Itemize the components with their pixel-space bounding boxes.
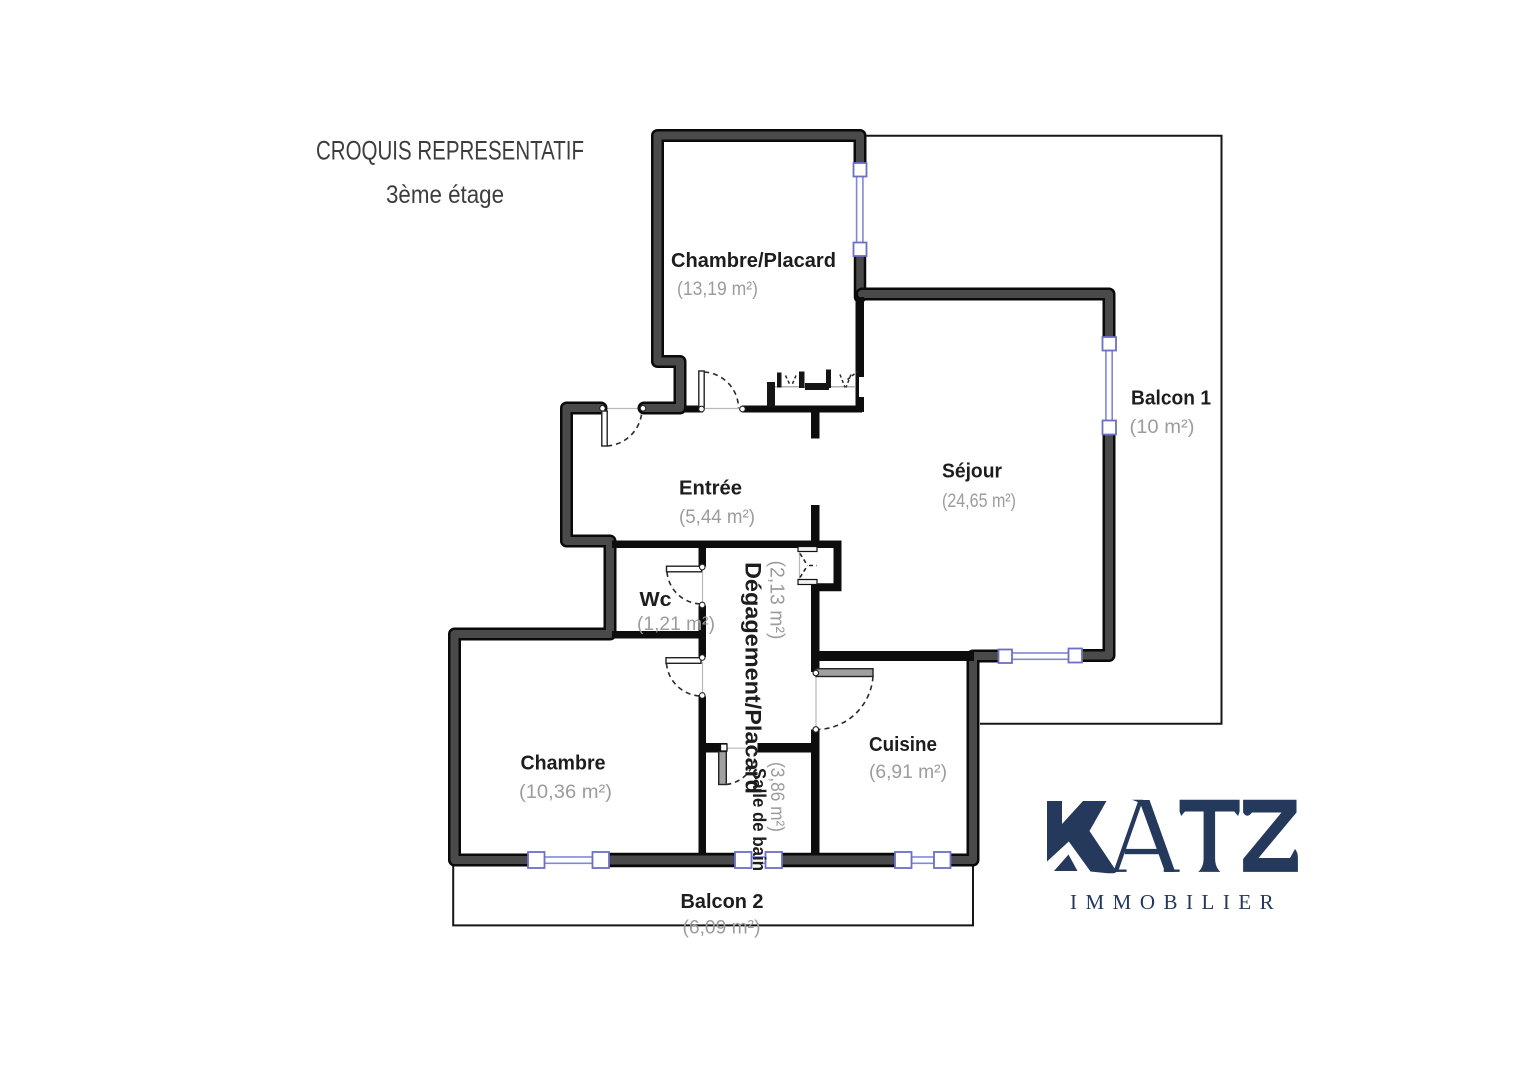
svg-text:Entrée: Entrée — [679, 478, 742, 500]
svg-text:(6,09 m²): (6,09 m²) — [683, 917, 761, 939]
svg-text:Balcon 1: Balcon 1 — [1131, 388, 1211, 410]
svg-text:(10 m²): (10 m²) — [1130, 416, 1195, 438]
svg-text:(3,86 m²): (3,86 m²) — [766, 762, 787, 832]
svg-text:(1,21 m²): (1,21 m²) — [637, 613, 715, 635]
svg-text:Séjour: Séjour — [942, 461, 1002, 483]
svg-text:(5,44 m²): (5,44 m²) — [679, 506, 755, 528]
svg-text:Dégagement/Placard: Dégagement/Placard — [741, 562, 766, 794]
svg-text:Balcon 2: Balcon 2 — [681, 891, 764, 913]
svg-text:IMMOBILIER: IMMOBILIER — [1070, 890, 1282, 914]
svg-text:(2,13 m²): (2,13 m²) — [766, 561, 788, 640]
svg-text:(10,36 m²): (10,36 m²) — [519, 781, 612, 803]
svg-text:(24,65 m²): (24,65 m²) — [942, 490, 1016, 512]
svg-text:Cuisine: Cuisine — [869, 734, 937, 756]
svg-text:Chambre/Placard: Chambre/Placard — [671, 250, 836, 272]
svg-text:3ème étage: 3ème étage — [386, 181, 504, 209]
svg-text:(13,19 m²): (13,19 m²) — [677, 278, 758, 300]
svg-text:Salle de bain: Salle de bain — [749, 768, 769, 871]
svg-text:CROQUIS REPRESENTATIF: CROQUIS REPRESENTATIF — [316, 136, 584, 166]
svg-text:Wc: Wc — [640, 589, 672, 611]
svg-text:Chambre: Chambre — [521, 753, 606, 775]
svg-text:(6,91 m²): (6,91 m²) — [869, 761, 947, 783]
